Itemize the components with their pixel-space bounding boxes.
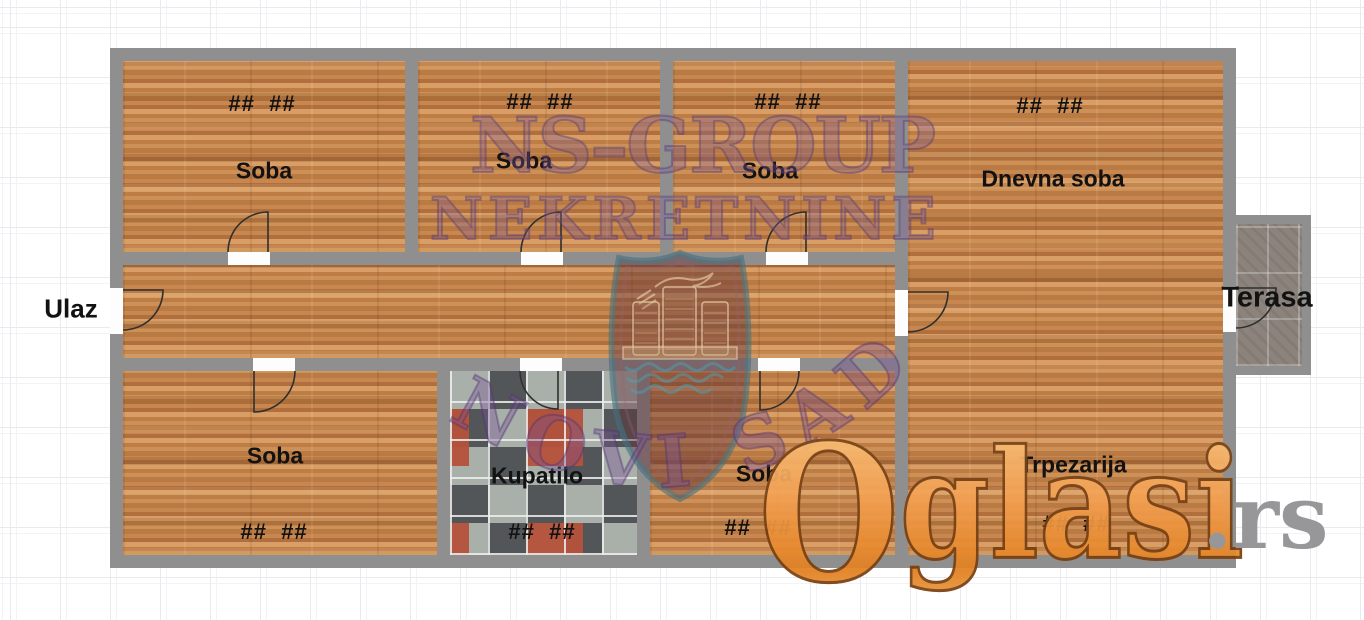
door-swing-soba-2 [521, 212, 561, 252]
room-label-kupatilo: Kupatilo [491, 463, 583, 490]
door-swing-soba-1 [228, 212, 268, 252]
room-label-trpezarija: Trpezarija [1019, 452, 1126, 479]
room-dims-soba-5: ## ## [724, 515, 791, 541]
room-dims-trpezarija: ## ## [1042, 511, 1109, 537]
room-label-soba-1: Soba [236, 158, 292, 185]
door-swing-layer [0, 0, 1364, 620]
room-dims-soba-3: ## ## [754, 89, 821, 115]
room-dims-soba-2: ## ## [506, 89, 573, 115]
entrance-label: Ulaz [44, 294, 97, 325]
room-dims-dnevna-soba: ## ## [1016, 93, 1083, 119]
door-swing-soba-4 [254, 371, 295, 412]
door-swing-bathroom [520, 371, 558, 409]
room-label-soba-2: Soba [496, 148, 552, 175]
room-dims-soba-1: ## ## [228, 91, 295, 117]
room-label-dnevna-soba: Dnevna soba [981, 166, 1124, 193]
room-label-soba-3: Soba [742, 158, 798, 185]
door-swing-soba-3 [766, 212, 806, 252]
door-swing-living [908, 292, 948, 332]
room-dims-kupatilo: ## ## [508, 519, 575, 545]
door-swing-soba-5 [760, 371, 799, 410]
room-label-soba-5: Soba [736, 461, 792, 488]
floorplan-canvas: ## ## Soba ## ## Soba ## ## Soba ## ## D… [0, 0, 1364, 620]
terrace-label: Terasa [1221, 282, 1312, 315]
room-dims-soba-4: ## ## [240, 519, 307, 545]
door-swing-entrance [123, 290, 163, 330]
room-label-soba-4: Soba [247, 443, 303, 470]
